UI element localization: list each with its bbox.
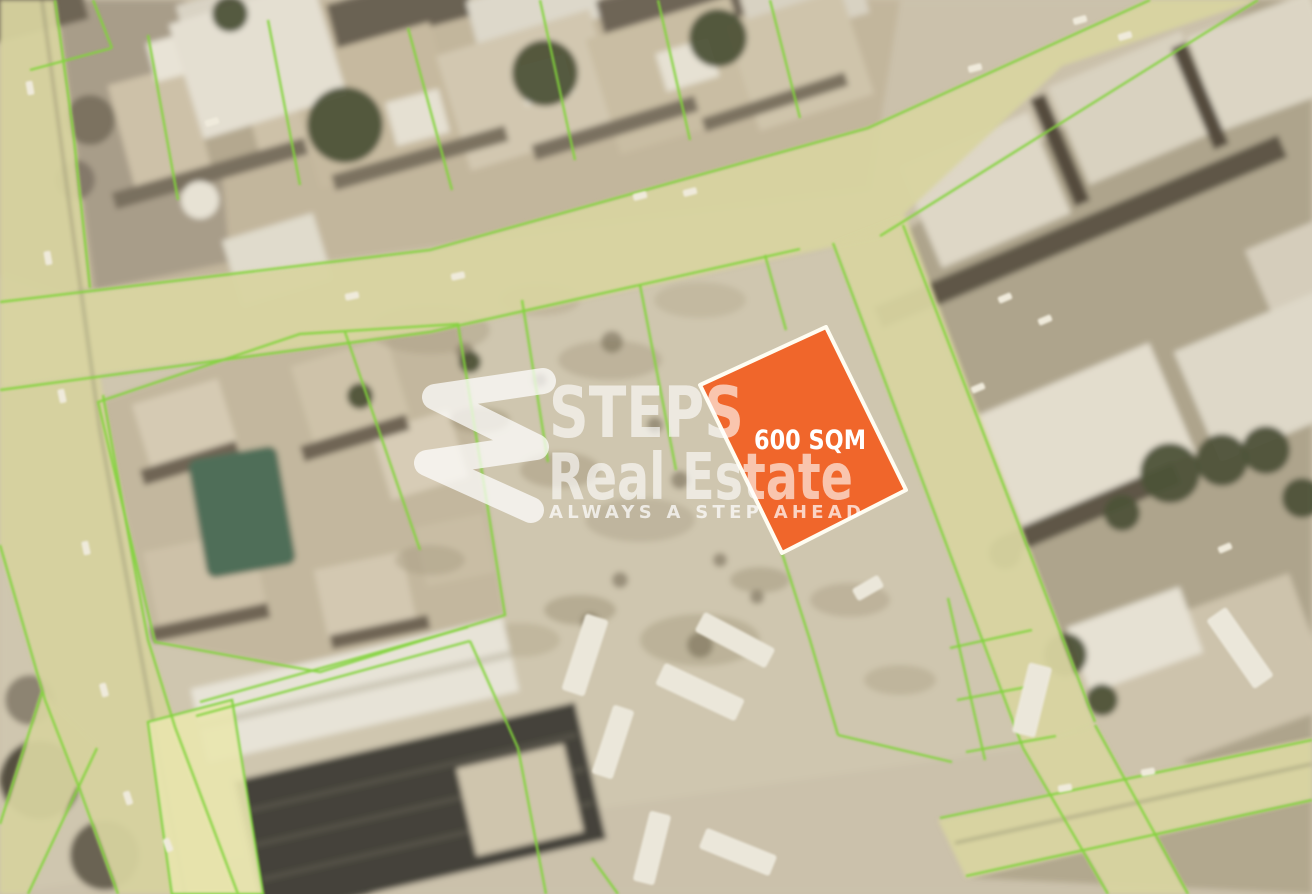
watermark-tagline: ALWAYS A STEP AHEAD [549,502,861,523]
dome-roof [181,181,219,219]
aerial-parcel-map: STEPS Real Estate ALWAYS A STEP AHEAD 60… [0,0,1312,894]
tree [307,87,383,163]
plot-area-label: 600 SQM [754,425,866,456]
map-canvas: STEPS Real Estate ALWAYS A STEP AHEAD 60… [0,0,1312,894]
